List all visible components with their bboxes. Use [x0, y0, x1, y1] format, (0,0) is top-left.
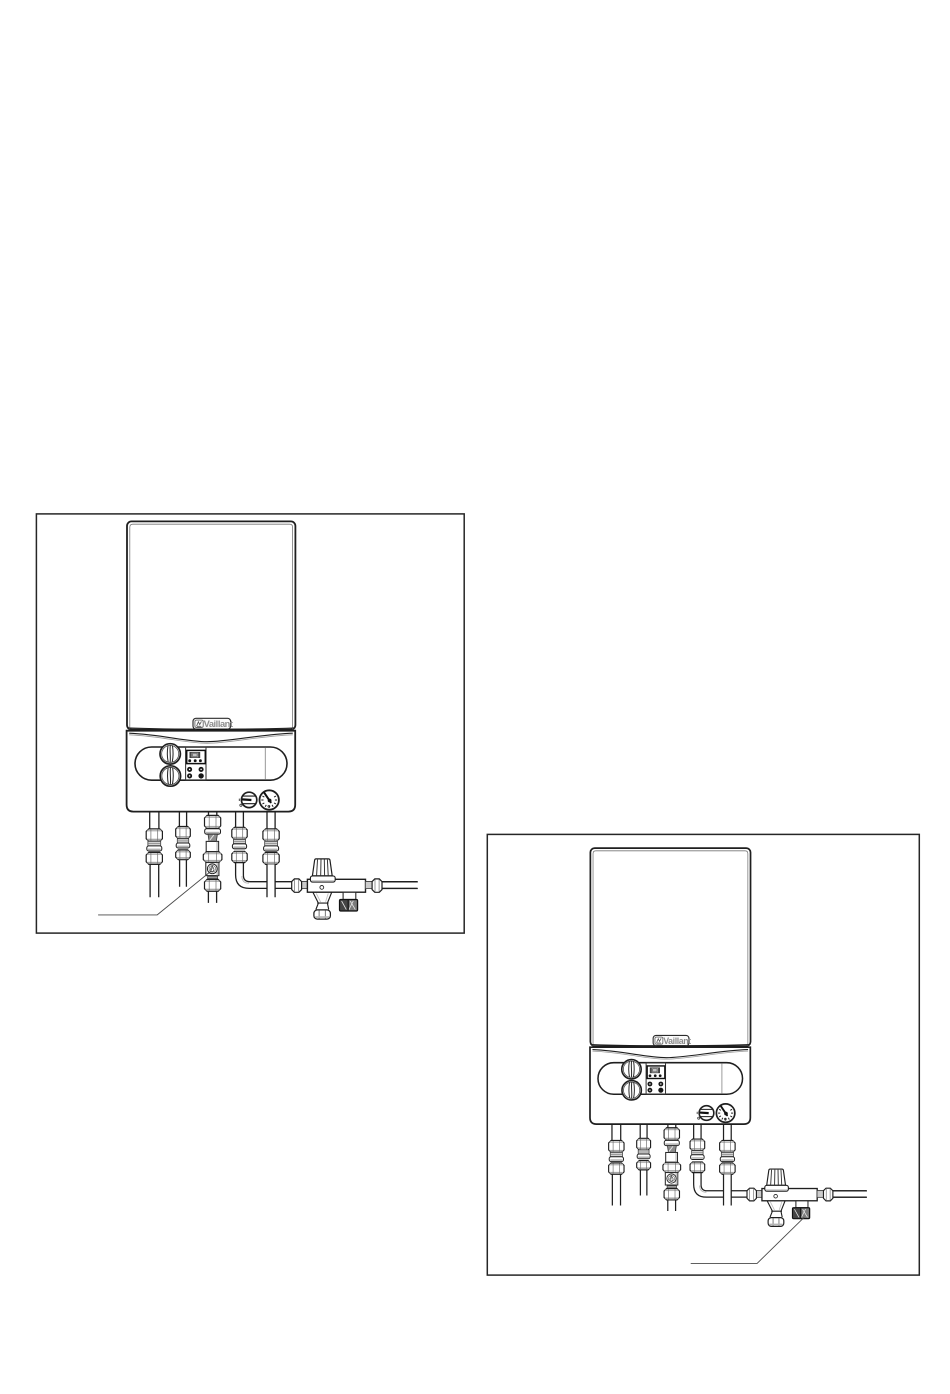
- svg-text:Vaillant: Vaillant: [204, 719, 233, 729]
- svg-text:Vaillant: Vaillant: [663, 1036, 691, 1046]
